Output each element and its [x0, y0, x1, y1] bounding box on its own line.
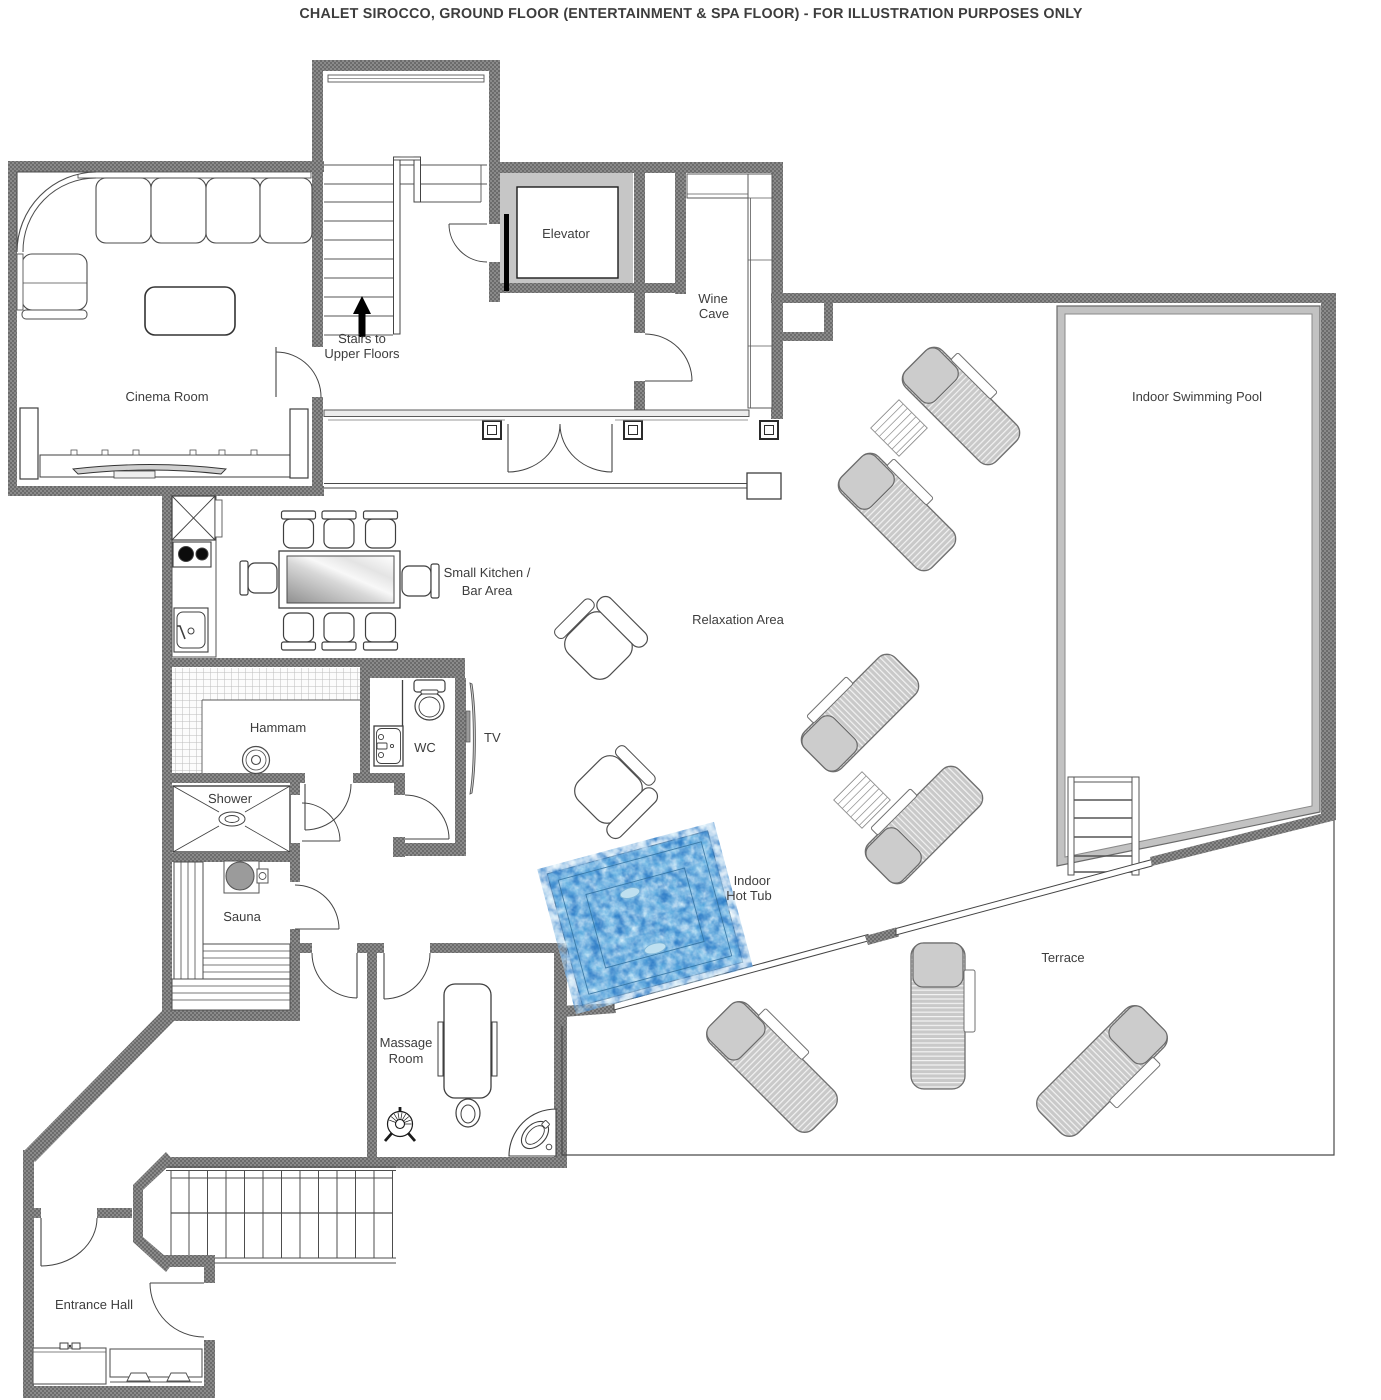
svg-text:Cave: Cave — [699, 306, 729, 321]
svg-text:Entrance Hall: Entrance Hall — [55, 1297, 133, 1312]
svg-text:Indoor Swimming Pool: Indoor Swimming Pool — [1132, 389, 1262, 404]
svg-text:Hot Tub: Hot Tub — [726, 888, 772, 903]
svg-text:Indoor: Indoor — [734, 873, 772, 888]
svg-text:WC: WC — [414, 740, 436, 755]
svg-text:Massage: Massage — [380, 1035, 433, 1050]
svg-text:Wine: Wine — [698, 291, 728, 306]
svg-text:TV: TV — [484, 730, 501, 745]
svg-text:Bar Area: Bar Area — [462, 583, 513, 598]
svg-text:Cinema Room: Cinema Room — [125, 389, 208, 404]
svg-text:CHALET SIROCCO, GROUND FLOOR (: CHALET SIROCCO, GROUND FLOOR (ENTERTAINM… — [299, 6, 1082, 22]
svg-text:Sauna: Sauna — [223, 909, 261, 924]
svg-text:Upper Floors: Upper Floors — [324, 346, 400, 361]
svg-text:Hammam: Hammam — [250, 720, 306, 735]
svg-text:Stairs to: Stairs to — [338, 331, 386, 346]
svg-text:Small Kitchen /: Small Kitchen / — [444, 565, 531, 580]
svg-text:Relaxation Area: Relaxation Area — [692, 612, 785, 627]
svg-text:Elevator: Elevator — [542, 226, 590, 241]
svg-text:Room: Room — [389, 1051, 424, 1066]
svg-text:Terrace: Terrace — [1041, 950, 1084, 965]
svg-text:Shower: Shower — [208, 791, 253, 806]
